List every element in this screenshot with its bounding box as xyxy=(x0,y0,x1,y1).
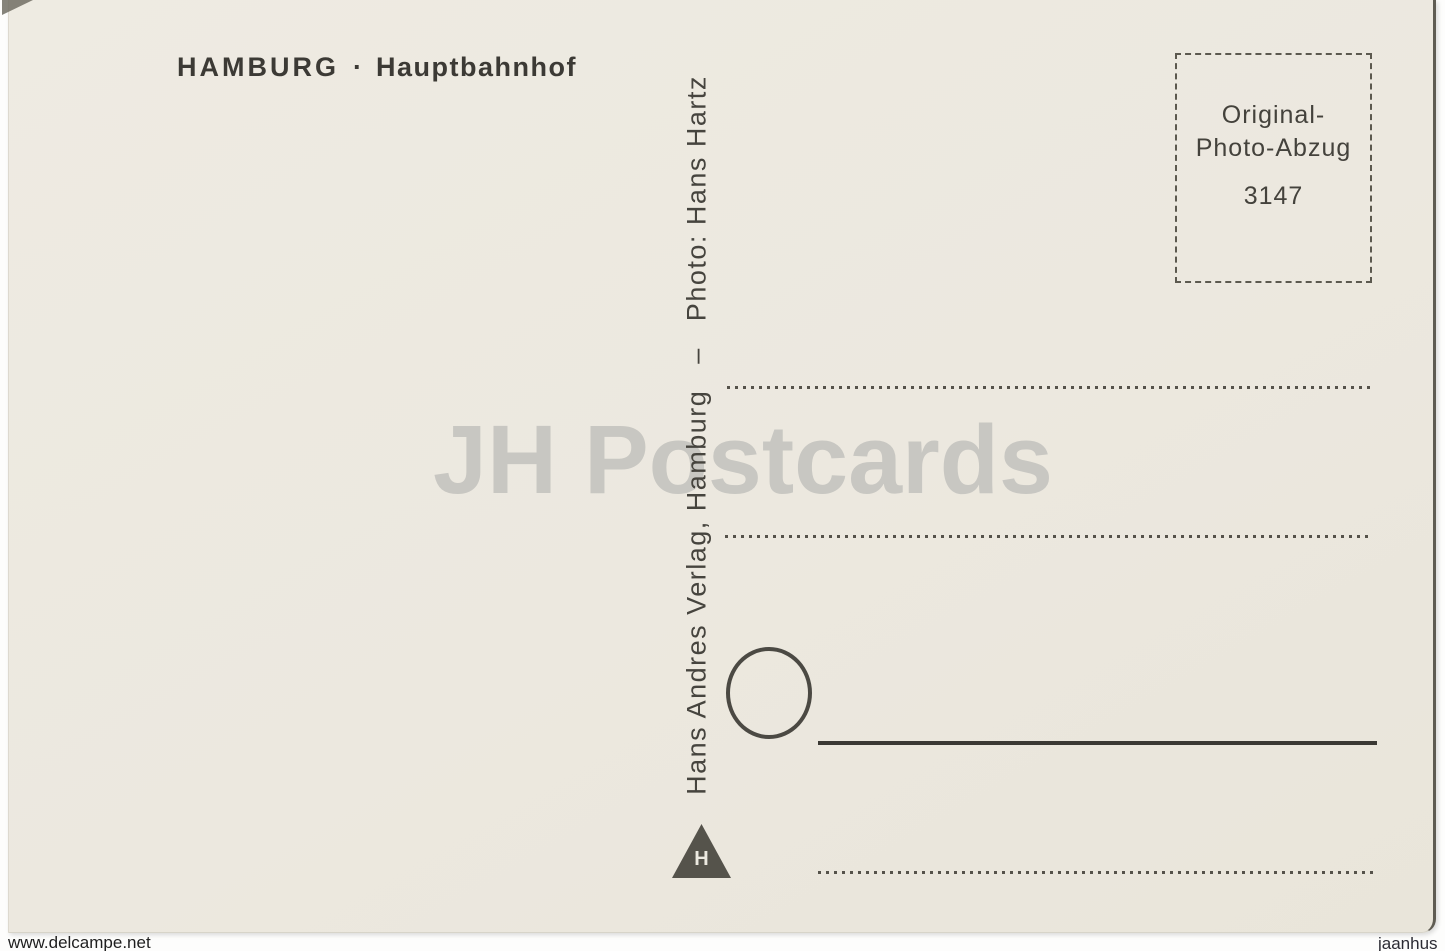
address-line-3 xyxy=(818,871,1374,874)
stamp-box-line2: Photo-Abzug xyxy=(1196,132,1352,165)
imprint-separator-dash: – xyxy=(682,347,713,364)
publisher-imprint: Hans Andres Verlag, Hamburg – Photo: Han… xyxy=(682,75,713,795)
publisher-logo-letter: H xyxy=(694,849,708,869)
stamp-box-line1: Original- xyxy=(1222,99,1325,132)
title-city: HAMBURG xyxy=(177,52,339,82)
postmark-circle-icon xyxy=(726,647,812,739)
postcard-title: HAMBURG·Hauptbahnhof xyxy=(177,52,577,83)
address-line-2 xyxy=(725,535,1373,538)
seller-watermark: JH Postcards xyxy=(433,407,1053,514)
stamp-box-number: 3147 xyxy=(1244,182,1304,211)
title-subject: Hauptbahnhof xyxy=(376,52,577,82)
imprint-photo-credit: Photo: Hans Hartz xyxy=(682,75,713,321)
title-separator-dot: · xyxy=(353,52,362,82)
stamp-box: Original- Photo-Abzug 3147 xyxy=(1175,53,1372,283)
footer-watermark-left: www.delcampe.net xyxy=(8,933,151,951)
address-line-1 xyxy=(727,386,1372,389)
imprint-publisher: Hans Andres Verlag, Hamburg xyxy=(682,390,713,795)
address-line-solid xyxy=(818,741,1377,745)
footer-watermark-right: jaanhus xyxy=(1378,934,1438,951)
postcard-scan: HAMBURG·Hauptbahnhof Original- Photo-Abz… xyxy=(0,0,1445,951)
